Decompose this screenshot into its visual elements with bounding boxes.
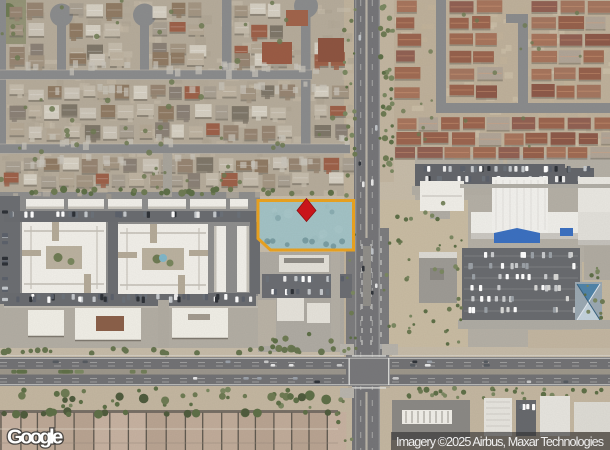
svg-text:Google: Google [7,426,63,449]
svg-text:Imagery ©2025 Airbus, Maxar Te: Imagery ©2025 Airbus, Maxar Technologies [396,435,604,449]
